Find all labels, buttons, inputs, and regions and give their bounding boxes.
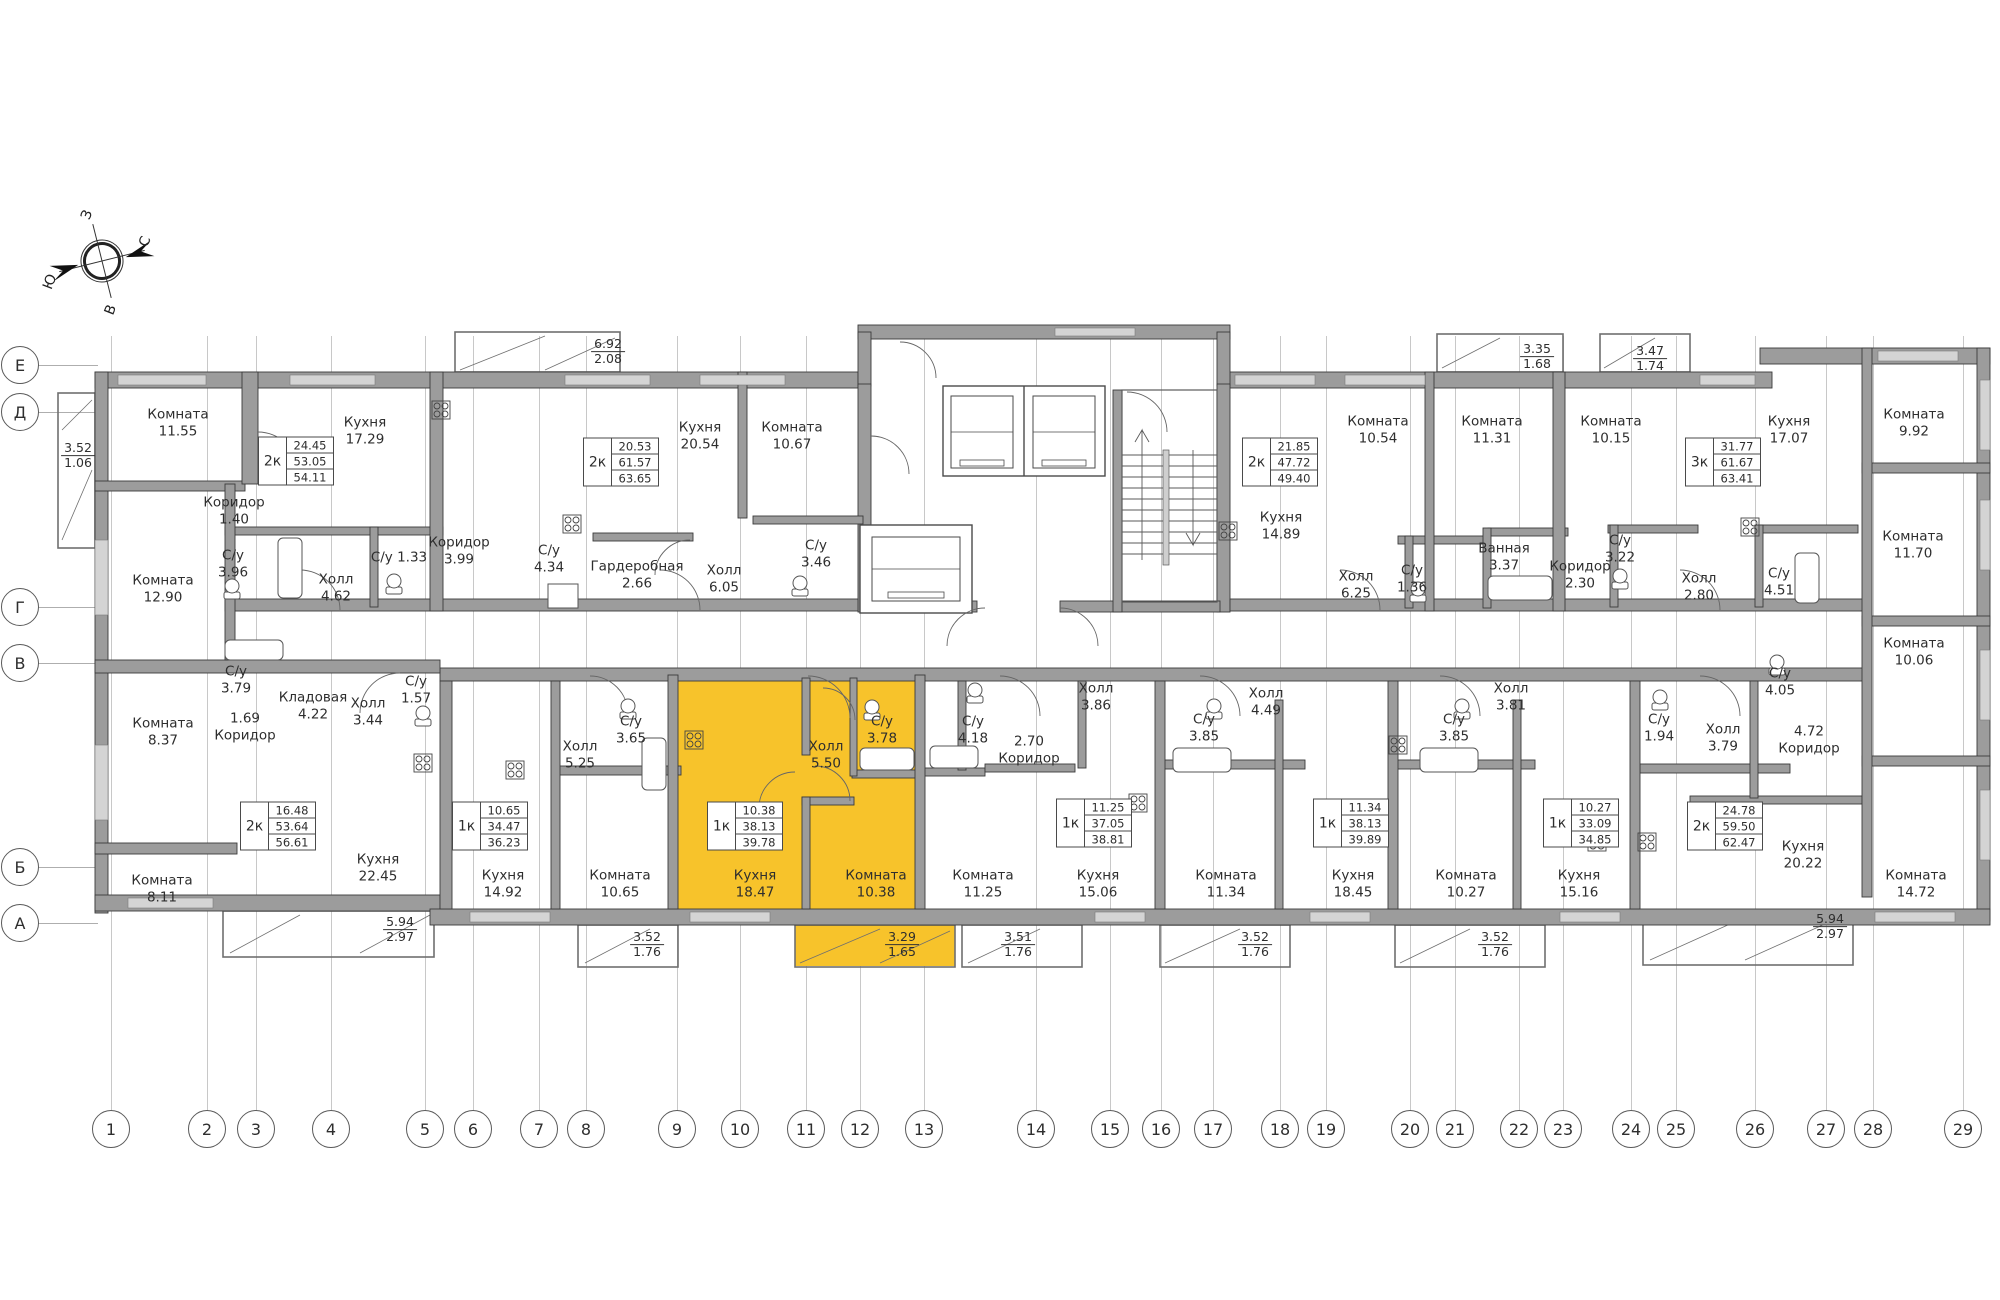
apartment-spec-box: 1к10.2733.0934.85 bbox=[1543, 799, 1619, 848]
apartment-type: 2к bbox=[259, 438, 287, 485]
axis-number: 4 bbox=[312, 1110, 350, 1148]
balcony-area-label: 3.351.68 bbox=[1520, 342, 1554, 372]
apartment-type: 2к bbox=[1243, 439, 1271, 486]
room-label: 1.69 Коридор bbox=[214, 711, 275, 746]
balcony-area-top: 5.94 bbox=[383, 915, 417, 930]
balcony-area-top: 5.94 bbox=[1813, 912, 1847, 927]
room-label: Холл 6.25 bbox=[1339, 569, 1374, 604]
axis-number: 22 bbox=[1500, 1110, 1538, 1148]
apartment-area-value: 10.27 bbox=[1572, 800, 1618, 816]
apartment-area-value: 24.45 bbox=[287, 438, 333, 454]
room-label: Холл 5.50 bbox=[809, 739, 844, 774]
room-label: Комната 10.67 bbox=[761, 420, 822, 455]
apartment-areas: 10.2733.0934.85 bbox=[1572, 800, 1618, 847]
apartment-area-value: 34.85 bbox=[1572, 832, 1618, 847]
room-label: Комната 10.38 bbox=[845, 868, 906, 903]
room-label: Комната 10.54 bbox=[1347, 414, 1408, 449]
axis-number: 10 bbox=[721, 1110, 759, 1148]
apartment-areas: 16.4853.6456.61 bbox=[269, 803, 315, 850]
balcony-area-label: 3.521.06 bbox=[61, 441, 95, 471]
balcony-area-bottom: 1.68 bbox=[1520, 358, 1554, 372]
apartment-spec-box: 1к10.6534.4736.23 bbox=[452, 802, 528, 851]
balcony-area-label: 3.521.76 bbox=[1478, 930, 1512, 960]
room-label: Комната 14.72 bbox=[1885, 868, 1946, 903]
axis-letter: А bbox=[1, 904, 39, 942]
apartment-area-value: 61.57 bbox=[612, 455, 658, 471]
apartment-type: 1к bbox=[708, 803, 736, 850]
axis-number: 6 bbox=[454, 1110, 492, 1148]
apartment-area-value: 10.38 bbox=[736, 803, 782, 819]
apartment-type: 2к bbox=[241, 803, 269, 850]
axis-number: 16 bbox=[1142, 1110, 1180, 1148]
axis-number: 13 bbox=[905, 1110, 943, 1148]
room-label: С/у 3.65 bbox=[616, 714, 646, 749]
room-label: Кухня 15.06 bbox=[1077, 868, 1120, 903]
axis-letter: Г bbox=[1, 588, 39, 626]
axis-number: 25 bbox=[1657, 1110, 1695, 1148]
balcony-area-label: 5.942.97 bbox=[383, 915, 417, 945]
room-label: 2.70 Коридор bbox=[998, 734, 1059, 769]
axis-number: 3 bbox=[237, 1110, 275, 1148]
apartment-type: 2к bbox=[1688, 803, 1716, 850]
room-label: С/у 3.96 bbox=[218, 548, 248, 583]
room-label: Кухня 20.54 bbox=[679, 420, 722, 455]
room-label: С/у 4.51 bbox=[1764, 566, 1794, 601]
room-label: С/у 1.94 bbox=[1644, 712, 1674, 747]
room-label: Комната 10.65 bbox=[589, 868, 650, 903]
axis-letter: Е bbox=[1, 346, 39, 384]
room-label: Комната 11.55 bbox=[147, 407, 208, 442]
room-label: Кухня 18.45 bbox=[1332, 868, 1375, 903]
balcony-area-label: 6.922.08 bbox=[591, 337, 625, 367]
room-label: Комната 12.90 bbox=[132, 573, 193, 608]
room-label: Комната 8.37 bbox=[132, 716, 193, 751]
axis-number: 29 bbox=[1944, 1110, 1982, 1148]
axis-number: 9 bbox=[658, 1110, 696, 1148]
axis-number: 7 bbox=[520, 1110, 558, 1148]
apartment-area-value: 62.47 bbox=[1716, 835, 1762, 850]
axis-number: 14 bbox=[1017, 1110, 1055, 1148]
apartment-spec-box: 2к20.5361.5763.65 bbox=[583, 438, 659, 487]
apartment-areas: 24.7859.5062.47 bbox=[1716, 803, 1762, 850]
apartment-areas: 20.5361.5763.65 bbox=[612, 439, 658, 486]
room-label: Холл 4.49 bbox=[1249, 686, 1284, 721]
room-label: Холл 3.86 bbox=[1079, 681, 1114, 716]
apartment-area-value: 61.67 bbox=[1714, 455, 1760, 471]
room-label: 4.72 Коридор bbox=[1778, 724, 1839, 759]
apartment-area-value: 20.53 bbox=[612, 439, 658, 455]
balcony-area-label: 3.521.76 bbox=[1238, 930, 1272, 960]
axis-number: 15 bbox=[1091, 1110, 1129, 1148]
apartment-area-value: 37.05 bbox=[1085, 816, 1131, 832]
apartment-area-value: 38.81 bbox=[1085, 832, 1131, 847]
apartment-type: 1к bbox=[453, 803, 481, 850]
room-label: Кухня 20.22 bbox=[1782, 839, 1825, 874]
room-label: Холл 4.62 bbox=[319, 572, 354, 607]
apartment-area-value: 53.64 bbox=[269, 819, 315, 835]
apartment-area-value: 54.11 bbox=[287, 470, 333, 485]
room-label: Комната 9.92 bbox=[1883, 407, 1944, 442]
balcony-area-bottom: 1.76 bbox=[1001, 946, 1035, 960]
axis-number: 19 bbox=[1307, 1110, 1345, 1148]
room-label: С/у 3.85 bbox=[1439, 712, 1469, 747]
apartment-area-value: 11.25 bbox=[1085, 800, 1131, 816]
room-label: Комната 11.70 bbox=[1882, 529, 1943, 564]
apartment-area-value: 53.05 bbox=[287, 454, 333, 470]
axis-number: 11 bbox=[787, 1110, 825, 1148]
balcony-area-bottom: 1.76 bbox=[1238, 946, 1272, 960]
axis-letter: В bbox=[1, 644, 39, 682]
apartment-areas: 24.4553.0554.11 bbox=[287, 438, 333, 485]
room-label: С/у 4.34 bbox=[534, 543, 564, 578]
room-label: Комната 8.11 bbox=[131, 873, 192, 908]
axis-letter: Д bbox=[1, 393, 39, 431]
apartment-type: 3к bbox=[1686, 439, 1714, 486]
room-label: Холл 2.80 bbox=[1682, 571, 1717, 606]
apartment-areas: 11.2537.0538.81 bbox=[1085, 800, 1131, 847]
apartment-type: 1к bbox=[1544, 800, 1572, 847]
axis-number: 2 bbox=[188, 1110, 226, 1148]
apartment-type: 1к bbox=[1314, 800, 1342, 847]
room-label: Кухня 14.92 bbox=[482, 868, 525, 903]
apartment-area-value: 38.13 bbox=[736, 819, 782, 835]
room-label: Коридор 2.30 bbox=[1549, 559, 1610, 594]
room-label: Комната 10.27 bbox=[1435, 868, 1496, 903]
axis-letter: Б bbox=[1, 848, 39, 886]
room-label: С/у 1.33 bbox=[371, 549, 427, 566]
apartment-area-value: 24.78 bbox=[1716, 803, 1762, 819]
apartment-area-value: 38.13 bbox=[1342, 816, 1388, 832]
apartment-area-value: 49.40 bbox=[1271, 471, 1317, 486]
apartment-spec-box: 2к24.7859.5062.47 bbox=[1687, 802, 1763, 851]
apartment-spec-box: 2к16.4853.6456.61 bbox=[240, 802, 316, 851]
apartment-area-value: 21.85 bbox=[1271, 439, 1317, 455]
axis-number: 21 bbox=[1436, 1110, 1474, 1148]
apartment-area-value: 11.34 bbox=[1342, 800, 1388, 816]
balcony-area-top: 3.35 bbox=[1520, 342, 1554, 357]
balcony-area-bottom: 1.74 bbox=[1633, 360, 1667, 374]
room-label: С/у 3.78 bbox=[867, 714, 897, 749]
axis-number: 27 bbox=[1807, 1110, 1845, 1148]
balcony-area-bottom: 2.97 bbox=[383, 931, 417, 945]
balcony-area-label: 3.471.74 bbox=[1633, 344, 1667, 374]
axis-number: 28 bbox=[1854, 1110, 1892, 1148]
axis-number: 1 bbox=[92, 1110, 130, 1148]
axis-number: 23 bbox=[1544, 1110, 1582, 1148]
apartment-spec-box: 1к10.3838.1339.78 bbox=[707, 802, 783, 851]
room-label: Кухня 18.47 bbox=[734, 868, 777, 903]
balcony-area-top: 3.52 bbox=[1238, 930, 1272, 945]
apartment-area-value: 56.61 bbox=[269, 835, 315, 850]
apartment-areas: 21.8547.7249.40 bbox=[1271, 439, 1317, 486]
balcony-area-top: 6.92 bbox=[591, 337, 625, 352]
balcony-area-label: 3.521.76 bbox=[630, 930, 664, 960]
apartment-type: 1к bbox=[1057, 800, 1085, 847]
apartment-spec-box: 3к31.7761.6763.41 bbox=[1685, 438, 1761, 487]
room-label: С/у 3.22 bbox=[1605, 533, 1635, 568]
apartment-area-value: 10.65 bbox=[481, 803, 527, 819]
apartment-spec-box: 1к11.3438.1339.89 bbox=[1313, 799, 1389, 848]
apartment-area-value: 33.09 bbox=[1572, 816, 1618, 832]
apartment-type: 2к bbox=[584, 439, 612, 486]
apartment-areas: 10.6534.4736.23 bbox=[481, 803, 527, 850]
room-label: Комната 10.15 bbox=[1580, 414, 1641, 449]
balcony-area-bottom: 2.97 bbox=[1813, 928, 1847, 942]
apartment-area-value: 47.72 bbox=[1271, 455, 1317, 471]
room-label: Комната 10.06 bbox=[1883, 636, 1944, 671]
axis-number: 17 bbox=[1194, 1110, 1232, 1148]
room-label: С/у 1.36 bbox=[1397, 563, 1427, 598]
room-label: Кладовая 4.22 bbox=[279, 690, 347, 725]
axis-number: 5 bbox=[406, 1110, 444, 1148]
room-label: Холл 3.44 bbox=[351, 696, 386, 731]
floor-plan: З С Ю В 12345678910111213141516171819202… bbox=[0, 0, 2000, 1300]
room-label: Холл 6.05 bbox=[707, 563, 742, 598]
balcony-area-bottom: 1.06 bbox=[61, 457, 95, 471]
room-label: С/у 4.18 bbox=[958, 714, 988, 749]
apartment-spec-box: 2к21.8547.7249.40 bbox=[1242, 438, 1318, 487]
balcony-area-top: 3.29 bbox=[885, 930, 919, 945]
balcony-area-bottom: 1.76 bbox=[630, 946, 664, 960]
room-label: Комната 11.34 bbox=[1195, 868, 1256, 903]
balcony-area-top: 3.52 bbox=[61, 441, 95, 456]
room-label: Коридор 1.40 bbox=[203, 495, 264, 530]
balcony-area-bottom: 2.08 bbox=[591, 353, 625, 367]
apartment-area-value: 31.77 bbox=[1714, 439, 1760, 455]
room-label: С/у 3.85 bbox=[1189, 712, 1219, 747]
room-label: Холл 5.25 bbox=[563, 739, 598, 774]
apartment-area-value: 36.23 bbox=[481, 835, 527, 850]
balcony-area-top: 3.51 bbox=[1001, 930, 1035, 945]
room-label: Комната 11.31 bbox=[1461, 414, 1522, 449]
balcony-area-label: 3.511.76 bbox=[1001, 930, 1035, 960]
labels-layer: 1234567891011121314151617181920212223242… bbox=[0, 0, 2000, 1300]
apartment-area-value: 63.41 bbox=[1714, 471, 1760, 486]
apartment-areas: 31.7761.6763.41 bbox=[1714, 439, 1760, 486]
axis-number: 18 bbox=[1261, 1110, 1299, 1148]
balcony-area-bottom: 1.65 bbox=[885, 946, 919, 960]
room-label: Холл 3.81 bbox=[1494, 681, 1529, 716]
room-label: Ванная 3.37 bbox=[1478, 541, 1530, 576]
room-label: С/у 3.46 bbox=[801, 538, 831, 573]
axis-number: 24 bbox=[1612, 1110, 1650, 1148]
axis-number: 12 bbox=[841, 1110, 879, 1148]
balcony-area-bottom: 1.76 bbox=[1478, 946, 1512, 960]
balcony-area-top: 3.52 bbox=[1478, 930, 1512, 945]
room-label: С/у 4.05 bbox=[1765, 666, 1795, 701]
balcony-area-top: 3.47 bbox=[1633, 344, 1667, 359]
room-label: Комната 11.25 bbox=[952, 868, 1013, 903]
room-label: Кухня 14.89 bbox=[1260, 510, 1303, 545]
room-label: Кухня 17.29 bbox=[344, 415, 387, 450]
apartment-areas: 10.3838.1339.78 bbox=[736, 803, 782, 850]
apartment-area-value: 39.78 bbox=[736, 835, 782, 850]
apartment-area-value: 63.65 bbox=[612, 471, 658, 486]
room-label: Кухня 15.16 bbox=[1558, 868, 1601, 903]
apartment-area-value: 39.89 bbox=[1342, 832, 1388, 847]
balcony-area-label: 5.942.97 bbox=[1813, 912, 1847, 942]
room-label: Коридор 3.99 bbox=[428, 535, 489, 570]
axis-number: 26 bbox=[1736, 1110, 1774, 1148]
apartment-area-value: 16.48 bbox=[269, 803, 315, 819]
axis-number: 20 bbox=[1391, 1110, 1429, 1148]
apartment-spec-box: 2к24.4553.0554.11 bbox=[258, 437, 334, 486]
room-label: Гардеробная 2.66 bbox=[590, 559, 683, 594]
room-label: Кухня 22.45 bbox=[357, 852, 400, 887]
room-label: Холл 3.79 bbox=[1706, 722, 1741, 757]
room-label: С/у 3.79 bbox=[221, 664, 251, 699]
balcony-area-label: 3.291.65 bbox=[885, 930, 919, 960]
room-label: С/у 1.57 bbox=[401, 674, 431, 709]
apartment-spec-box: 1к11.2537.0538.81 bbox=[1056, 799, 1132, 848]
apartment-area-value: 59.50 bbox=[1716, 819, 1762, 835]
axis-number: 8 bbox=[567, 1110, 605, 1148]
room-label: Кухня 17.07 bbox=[1768, 414, 1811, 449]
apartment-areas: 11.3438.1339.89 bbox=[1342, 800, 1388, 847]
balcony-area-top: 3.52 bbox=[630, 930, 664, 945]
apartment-area-value: 34.47 bbox=[481, 819, 527, 835]
